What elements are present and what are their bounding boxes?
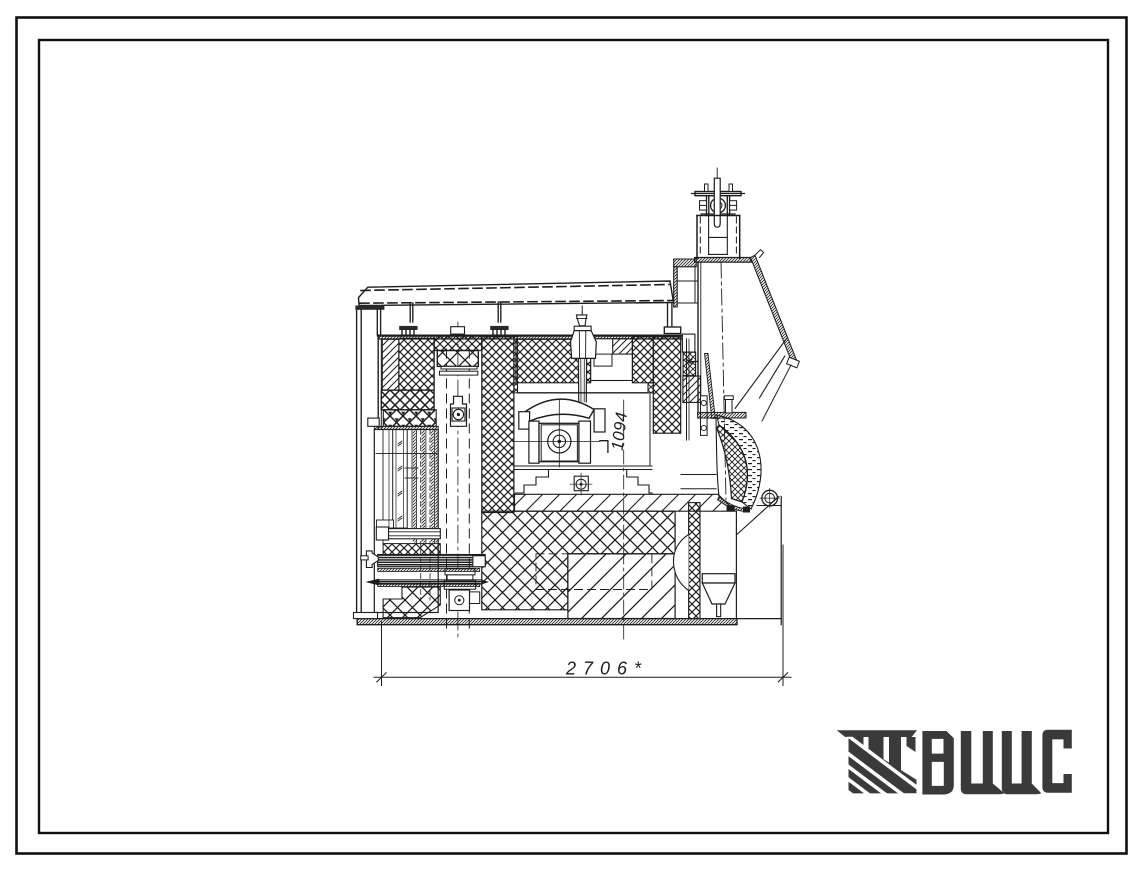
svg-text:1094: 1094 xyxy=(609,411,632,452)
svg-text:2706*: 2706* xyxy=(565,659,648,679)
